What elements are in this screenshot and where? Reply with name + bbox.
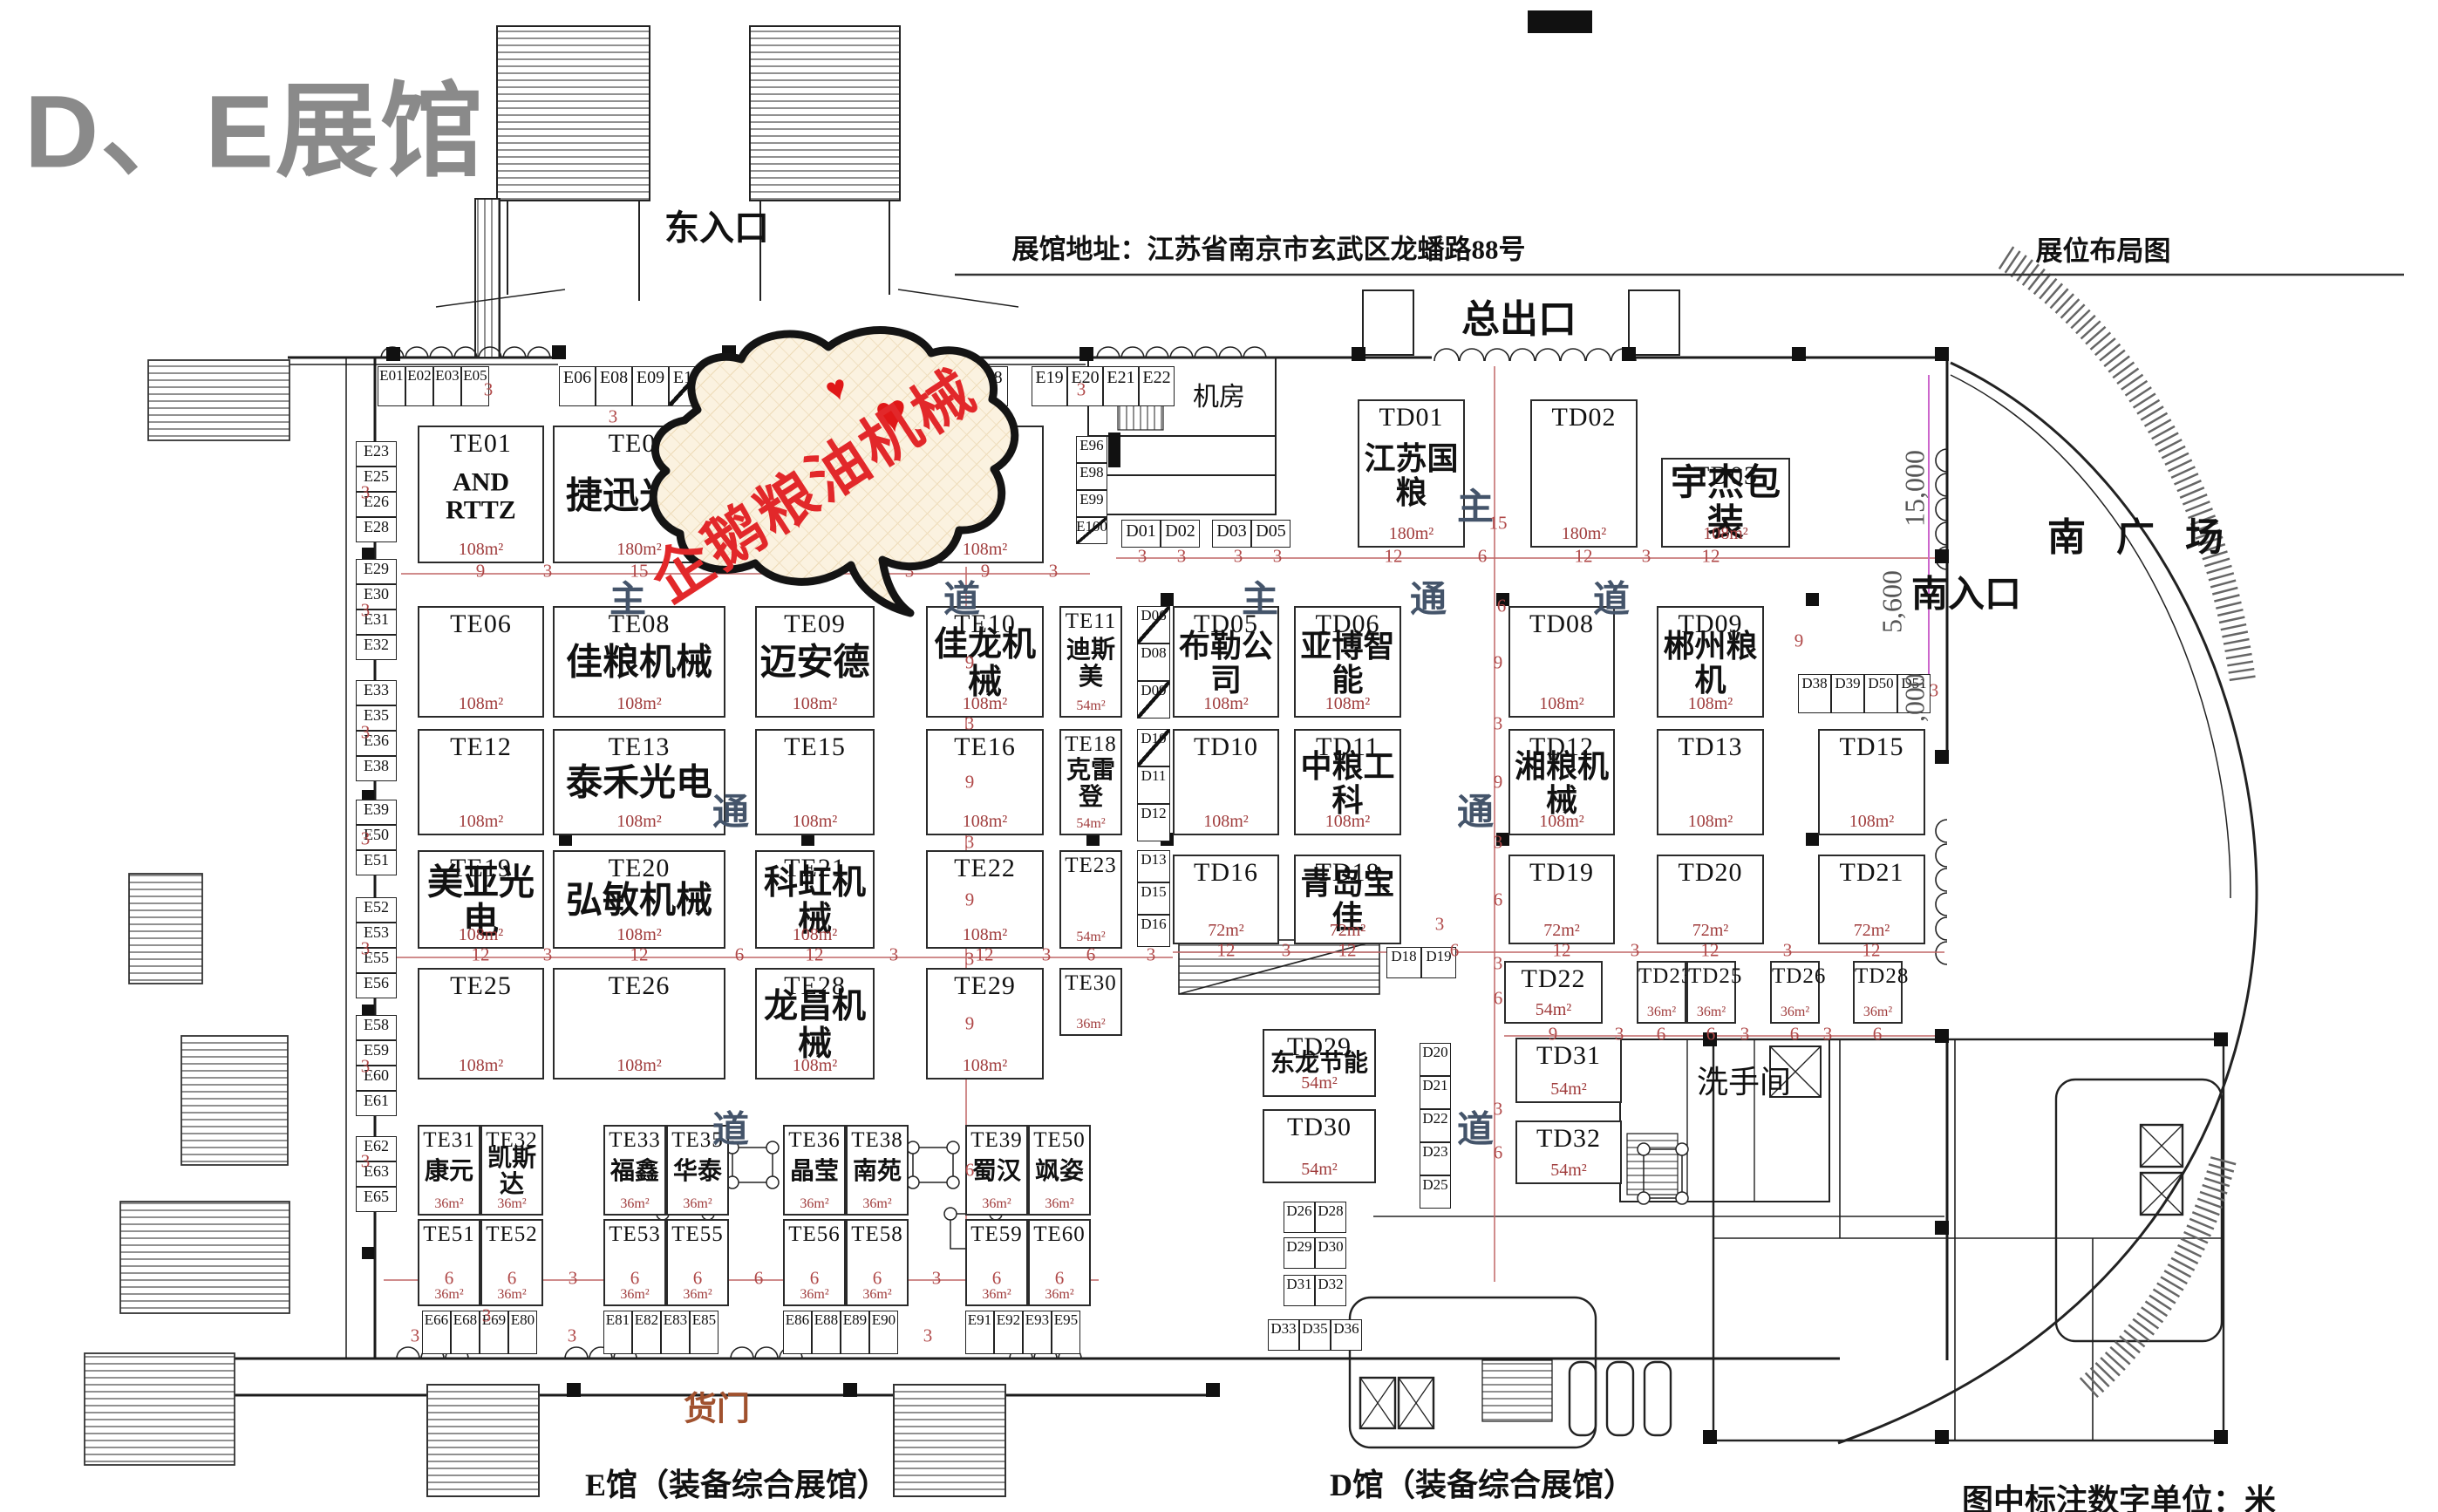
floor-plan: D、E展馆 东入口 展馆地址：江苏省南京市玄武区龙蟠路88号 展位布局图 总出口… [0, 0, 2438, 1512]
promo-bubble: ♥ ♥ 企鹅粮油机械 [0, 0, 2438, 1512]
